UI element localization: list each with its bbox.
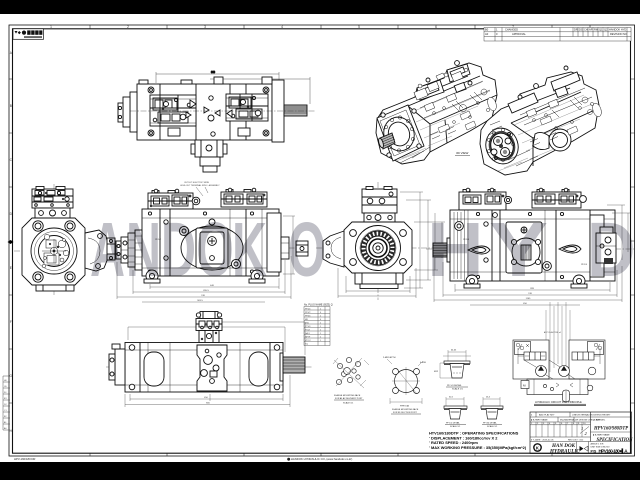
svg-text:SCALE 1/1: SCALE 1/1: [343, 402, 354, 405]
svg-text:REV-LIST : 002: REV-LIST : 002: [568, 439, 584, 441]
svg-text:903.5: 903.5: [197, 300, 203, 302]
svg-text:RM: RM: [594, 28, 598, 32]
svg-text:FLANGE MOUNTING FACE: FLANGE MOUNTING FACE: [392, 408, 419, 411]
svg-text:PF 3/4 DETAIL: PF 3/4 DETAIL: [483, 422, 498, 425]
svg-text:O: O: [196, 207, 234, 293]
svg-text:4: 4: [281, 25, 283, 29]
svg-text:1165: 1165: [526, 298, 531, 300]
svg-text:NPTF: NPTF: [305, 336, 311, 338]
svg-text:No. PLUG NAME (SIZE) Q: No. PLUG NAME (SIZE) Q: [304, 304, 333, 307]
svg-text:1: 1: [50, 25, 52, 29]
svg-text:PF 1/4 DETAIL: PF 1/4 DETAIL: [447, 384, 462, 387]
svg-text:PF1/4: PF1/4: [305, 308, 311, 310]
svg-text:N: N: [126, 207, 161, 293]
svg-text:APPROVAL: APPROVAL: [512, 32, 526, 36]
svg-text:REVISION NO: REVISION NO: [610, 32, 627, 36]
svg-text:DS: DS: [579, 28, 583, 32]
svg-text:⬤ HANDOK HYDRAULIC CO.,(www.ha: ⬤ HANDOK HYDRAULIC CO.,(www.handokc.co.k…: [287, 457, 352, 461]
svg-text:O: O: [288, 207, 326, 293]
svg-text:◎ T-MODEL: ◎ T-MODEL: [593, 419, 606, 422]
svg-text:SCALE 1/1: SCALE 1/1: [452, 388, 464, 391]
svg-text:PF3/4: PF3/4: [305, 315, 311, 317]
svg-text:HPV-160/180 DR: HPV-160/180 DR: [14, 457, 35, 461]
svg-text:AP: AP: [589, 28, 593, 32]
svg-text:HANDOK HYD: HANDOK HYD: [609, 28, 626, 32]
svg-text:2-M8 DEPTH: 2-M8 DEPTH: [383, 357, 396, 359]
svg-text:44.45: 44.45: [451, 350, 457, 352]
svg-text:Q1: Q1: [599, 28, 603, 32]
svg-text:■ B-PART NAME: ■ B-PART NAME: [531, 419, 548, 422]
svg-text:SCALE 1/1: SCALE 1/1: [487, 425, 498, 428]
svg-text:HYDRAULIC CIRCUIT FOR PRINC: HYDRAULIC CIRCUIT FOR PRINCIPLE: [535, 400, 582, 404]
svg-text:F: F: [10, 320, 12, 324]
svg-text:868: 868: [211, 71, 216, 74]
svg-text:4-M10: 4-M10: [420, 362, 427, 364]
svg-text:ANGLE 1 N R: ANGLE 1 N R: [591, 443, 604, 446]
svg-text:Q2: Q2: [604, 28, 608, 32]
svg-text:PO-R: PO-R: [305, 329, 311, 331]
svg-text:HPV160/980DTP: HPV160/980DTP: [593, 427, 628, 432]
svg-text:SPECIFICATION: SPECIFICATION: [597, 438, 634, 443]
svg-text:E: E: [10, 266, 12, 270]
svg-text:3: 3: [204, 25, 206, 29]
svg-text:B: B: [10, 104, 12, 108]
svg-text:MQ-MATERIAL: MQ-MATERIAL: [560, 419, 576, 422]
svg-text:SQ: SQ: [305, 343, 308, 345]
svg-text:SCALE 1/1: SCALE 1/1: [450, 425, 461, 428]
svg-text:D: D: [587, 208, 635, 293]
svg-text:6: 6: [435, 25, 437, 29]
svg-text:3D VIEW: 3D VIEW: [456, 151, 469, 155]
svg-text:D: D: [161, 207, 196, 293]
svg-text:H: H: [427, 208, 484, 293]
svg-text:PT1/4: PT1/4: [305, 326, 311, 328]
svg-text:A: A: [90, 207, 125, 293]
svg-text:Y: Y: [489, 206, 548, 292]
svg-text:' MAX WORKING PRESSURE : 35(35: ' MAX WORKING PRESSURE : 35(350)MPa(kgf/…: [429, 445, 527, 450]
svg-text:■ B-PART NAME: ■ B-PART NAME: [593, 433, 610, 436]
svg-text:OUTLET ELECTRIC WIRE: OUTLET ELECTRIC WIRE: [184, 182, 210, 184]
svg-text:1: 1: [581, 426, 583, 431]
svg-text:PIPE DIA: PIPE DIA: [400, 405, 409, 408]
svg-text:5: 5: [358, 25, 360, 29]
svg-text:LESS-OUT TERMINAL SPEC. ASSEMB: LESS-OUT TERMINAL SPEC. ASSEMBLY: [180, 184, 220, 187]
svg-text:K: K: [232, 207, 267, 293]
svg-text:A1 P1 Dr A2 P2 B1 a4: A1 P1 Dr A2 P2 B1 a4: [544, 331, 561, 334]
svg-text:DR: DR: [574, 28, 578, 32]
svg-text:B0: B0: [485, 28, 489, 32]
svg-text:A0: A0: [485, 32, 489, 36]
svg-text:LINE-EXTERNAL MOUNTING HEIGHT: LINE-EXTERNAL MOUNTING HEIGHT: [572, 414, 611, 417]
svg-text:PF 1/2 DETAIL: PF 1/2 DETAIL: [446, 422, 461, 425]
svg-text:FLANGE MOUNTING FACE: FLANGE MOUNTING FACE: [334, 394, 361, 397]
svg-text:FOR A1 A2 DELIVERY PORT: FOR A1 A2 DELIVERY PORT: [335, 397, 363, 400]
svg-text:VP-12: VP-12: [305, 340, 311, 342]
svg-text:AND PLAT KEY: AND PLAT KEY: [539, 414, 555, 417]
svg-text:● T-DATE : 2023-02-05: ● T-DATE : 2023-02-05: [531, 438, 554, 441]
svg-text:2: 2: [127, 25, 129, 29]
svg-text:CH: CH: [584, 28, 588, 32]
svg-text:FOR B1 SUCTION PORT: FOR B1 SUCTION PORT: [393, 412, 417, 414]
svg-text:CHANGED: CHANGED: [505, 28, 518, 32]
svg-text:PF1/2: PF1/2: [305, 312, 311, 314]
